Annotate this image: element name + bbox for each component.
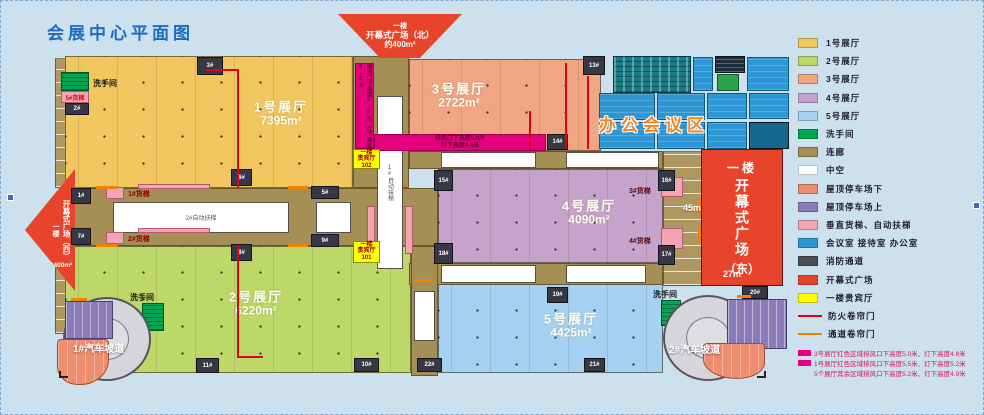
legend-item: 通道卷帘门 xyxy=(798,325,982,343)
freight-elevator-4-label: 4#货梯 xyxy=(629,236,651,246)
legend-color-swatch xyxy=(798,93,818,103)
escalator-strip xyxy=(138,228,210,233)
legend-item: 3号展厅 xyxy=(798,70,982,88)
hall-1 xyxy=(65,56,353,188)
corner-mark-southwest xyxy=(59,371,68,378)
office-room xyxy=(707,122,747,149)
passage-shutter-line xyxy=(288,244,308,247)
escalator-1-label: 1#自动扶梯 xyxy=(386,165,395,201)
passage-shutter-line xyxy=(96,186,118,189)
hall-4-label: 4号展厅4090m² xyxy=(562,199,616,226)
restroom-southwest-label: 洗手间 xyxy=(130,292,154,303)
legend-item-label: 屋顶停车场上 xyxy=(826,201,883,213)
freight-elevator-1-label: 1#货梯 xyxy=(128,189,150,199)
legend-item: 2号展厅 xyxy=(798,52,982,70)
legend-item-label: 2号展厅 xyxy=(826,55,860,67)
legend-note-text: 5个展厅其余区域排风口下高度5.2米、灯下高度4.9米 xyxy=(814,368,966,378)
legend-item-label: 防火卷帘门 xyxy=(828,310,876,322)
legend-color-swatch xyxy=(798,165,818,175)
ramp-1-parking-over xyxy=(65,301,113,339)
stairwell-box: 19# xyxy=(547,287,568,303)
note-swatch-spacer xyxy=(798,370,811,376)
office-zone-label: 办公会议区 xyxy=(599,111,709,136)
legend-note-text: 3号展厅红色区域排风口下高度5.0米、灯下高度4.8米 xyxy=(814,348,966,358)
stairwell-box: 3# xyxy=(197,57,223,75)
legend: 1号展厅2号展厅3号展厅4号展厅5号展厅洗手间连廊中空屋顶停车场下屋顶停车场上垂… xyxy=(798,34,982,377)
legend-item: 屋顶停车场下 xyxy=(798,180,982,198)
office-room xyxy=(693,57,713,91)
dimension-45m: 45m xyxy=(683,203,701,213)
stairwell-box: 18# xyxy=(434,243,453,264)
void-lower-left xyxy=(441,265,536,283)
rooftop-structure xyxy=(715,56,745,73)
stairwell-box: 6# xyxy=(231,169,252,186)
legend-item: 消防通道 xyxy=(798,252,982,270)
stairwell-box: 16# xyxy=(658,170,675,191)
stairwell-box: 2# xyxy=(65,103,89,115)
legend-item-label: 3号展厅 xyxy=(826,73,860,85)
legend-note-text: 1号展厅红色区域排风口下高度5.5米、灯下高度5.2米 xyxy=(814,358,966,368)
corner-mark-southeast xyxy=(757,371,766,378)
legend-item-label: 洗手间 xyxy=(826,128,855,140)
vent-strip-vertical: 排风口下高度5.5米、灯下高度5.2米 xyxy=(355,63,374,149)
legend-color-swatch xyxy=(798,38,818,48)
legend-color-swatch xyxy=(798,147,818,157)
legend-color-swatch xyxy=(798,111,818,121)
hall-4 xyxy=(438,169,663,263)
legend-item-label: 5号展厅 xyxy=(826,110,860,122)
passage-shutter-line xyxy=(288,186,308,189)
legend-item: 一楼贵宾厅 xyxy=(798,289,982,307)
passage-shutter-line xyxy=(413,279,433,282)
vip-room-102: 一楼 贵宾厅 102 xyxy=(353,149,380,169)
floor-plan-canvas: 会展中心平面图 2#自动扶梯 1#自动扶梯 1号展厅7395m² 2号展厅622… xyxy=(0,0,984,415)
ramp-1-label: 1#汽车坡道 xyxy=(73,340,124,355)
legend-item: 1号展厅 xyxy=(798,34,982,52)
note-color-swatch xyxy=(798,360,811,366)
legend-item: 会议室 接待室 办公室 xyxy=(798,234,982,252)
legend-item: 垂直货梯、自动扶梯 xyxy=(798,216,982,234)
dimension-27m: 27m xyxy=(723,269,741,279)
selection-handle-left[interactable] xyxy=(7,194,14,201)
legend-color-swatch xyxy=(798,238,818,248)
office-room-dark xyxy=(749,122,789,149)
legend-item-label: 屋顶停车场下 xyxy=(826,183,883,195)
stairwell-box: 22# xyxy=(417,358,442,372)
legend-item-label: 消防通道 xyxy=(826,255,864,267)
stairwell-box: 7# xyxy=(71,228,91,245)
restroom-southeast-label: 洗手间 xyxy=(653,289,677,300)
stairwell-box: 21# xyxy=(584,358,605,372)
note-color-swatch xyxy=(798,350,811,356)
escalator-1: 1#自动扶梯 xyxy=(377,96,403,269)
legend-notes: 3号展厅红色区域排风口下高度5.0米、灯下高度4.8米1号展厅红色区域排风口下高… xyxy=(798,348,982,377)
legend-item-label: 通道卷帘门 xyxy=(828,328,876,340)
hall-3-label: 3号展厅2722m² xyxy=(432,82,486,109)
legend-color-swatch xyxy=(798,74,818,84)
freight-elevator-2 xyxy=(106,232,124,244)
legend-item-label: 开幕式广场 xyxy=(826,274,874,286)
office-room xyxy=(707,93,747,119)
void-south xyxy=(414,291,435,341)
fire-shutter-line xyxy=(529,111,531,149)
office-room xyxy=(747,57,789,91)
legend-color-swatch xyxy=(798,129,818,139)
ramp-2-label: 2#汽车坡道 xyxy=(669,341,720,356)
legend-item-label: 中空 xyxy=(826,164,845,176)
legend-item-label: 1号展厅 xyxy=(826,37,860,49)
legend-line-swatch xyxy=(798,333,822,335)
fire-shutter-line xyxy=(237,69,239,188)
legend-item: 开幕式广场 xyxy=(798,270,982,288)
vip-room-101: 一楼 贵宾厅 101 xyxy=(353,241,380,263)
legend-color-swatch xyxy=(798,293,818,303)
void-upper-right xyxy=(566,152,659,168)
stairwell-box: 5# xyxy=(311,186,339,199)
legend-item: 屋顶停车场上 xyxy=(798,198,982,216)
stairwell-box: 9# xyxy=(311,234,339,247)
legend-item: 洗手间 xyxy=(798,125,982,143)
legend-item-label: 一楼贵宾厅 xyxy=(826,292,874,304)
stairwell-box: 17# xyxy=(658,245,675,265)
fire-shutter-line xyxy=(587,76,589,149)
plaza-north: 一楼 开幕式广场（北） 约400m² xyxy=(338,14,462,58)
passage-shutter-line xyxy=(737,295,751,298)
legend-note: 5个展厅其余区域排风口下高度5.2米、灯下高度4.9米 xyxy=(798,368,982,377)
legend-color-swatch xyxy=(798,56,818,66)
legend-note: 3号展厅红色区域排风口下高度5.0米、灯下高度4.8米 xyxy=(798,348,982,357)
restroom-northwest-label: 洗手间 xyxy=(93,78,117,89)
legend-item: 防火卷帘门 xyxy=(798,307,982,325)
legend-color-swatch xyxy=(798,220,818,230)
passage-shutter-line xyxy=(698,227,701,241)
passage-shutter-line xyxy=(96,244,118,247)
legend-item: 中空 xyxy=(798,161,982,179)
legend-color-swatch xyxy=(798,202,818,212)
legend-item: 4号展厅 xyxy=(798,89,982,107)
legend-item-label: 会议室 接待室 办公室 xyxy=(826,237,918,249)
office-room xyxy=(749,93,789,119)
plaza-west: 一楼 开幕式广场（西） 约400m² xyxy=(25,169,75,291)
legend-item-label: 垂直货梯、自动扶梯 xyxy=(826,219,912,231)
freight-elevator-2-label: 2#货梯 xyxy=(128,234,150,244)
void-lower-right xyxy=(566,265,646,283)
legend-item: 连廊 xyxy=(798,143,982,161)
restroom-northwest xyxy=(61,72,89,91)
fire-shutter-line xyxy=(565,63,567,149)
void-upper-left xyxy=(441,152,536,168)
page-title: 会展中心平面图 xyxy=(47,19,194,44)
fire-shutter-line xyxy=(237,246,239,358)
legend-items: 1号展厅2号展厅3号展厅4号展厅5号展厅洗手间连廊中空屋顶停车场下屋顶停车场上垂… xyxy=(798,34,982,343)
legend-line-swatch xyxy=(798,315,822,317)
vent-strip-horizontal: 排风口下高度5.0米 灯下高度4.8米 xyxy=(374,134,546,151)
stairwell-box: 11# xyxy=(196,358,219,373)
freight-elevator-5: 5#货梯 xyxy=(61,91,89,103)
ramp-2-parking-over xyxy=(727,299,787,349)
stairwell-box: 8# xyxy=(231,244,252,261)
legend-item: 5号展厅 xyxy=(798,107,982,125)
legend-color-swatch xyxy=(798,184,818,194)
stairwell-box: 13# xyxy=(583,56,605,75)
escalator-strip xyxy=(405,206,413,254)
legend-item-label: 4号展厅 xyxy=(826,92,860,104)
stairwell-box: 10# xyxy=(354,358,379,372)
conference-hall-room xyxy=(613,56,691,93)
plaza-east: 一楼 开幕式广场 （东） xyxy=(701,149,783,286)
hall-5-label: 5号展厅4425m² xyxy=(544,312,598,339)
void-corridor-right xyxy=(316,202,351,233)
green-room xyxy=(717,74,739,91)
hall-1-label: 1号展厅7395m² xyxy=(254,100,308,127)
stairwell-box: 1# xyxy=(71,188,91,204)
legend-note: 1号展厅红色区域排风口下高度5.5米、灯下高度5.2米 xyxy=(798,358,982,367)
freight-elevator-3-label: 3#货梯 xyxy=(629,186,651,196)
fire-shutter-line xyxy=(206,69,239,71)
legend-color-swatch xyxy=(798,256,818,266)
legend-color-swatch xyxy=(798,275,818,285)
escalator-2-label: 2#自动扶梯 xyxy=(186,213,217,222)
legend-item-label: 连廊 xyxy=(826,146,845,158)
fire-shutter-line xyxy=(237,356,263,358)
stairwell-box: 15# xyxy=(434,170,453,191)
